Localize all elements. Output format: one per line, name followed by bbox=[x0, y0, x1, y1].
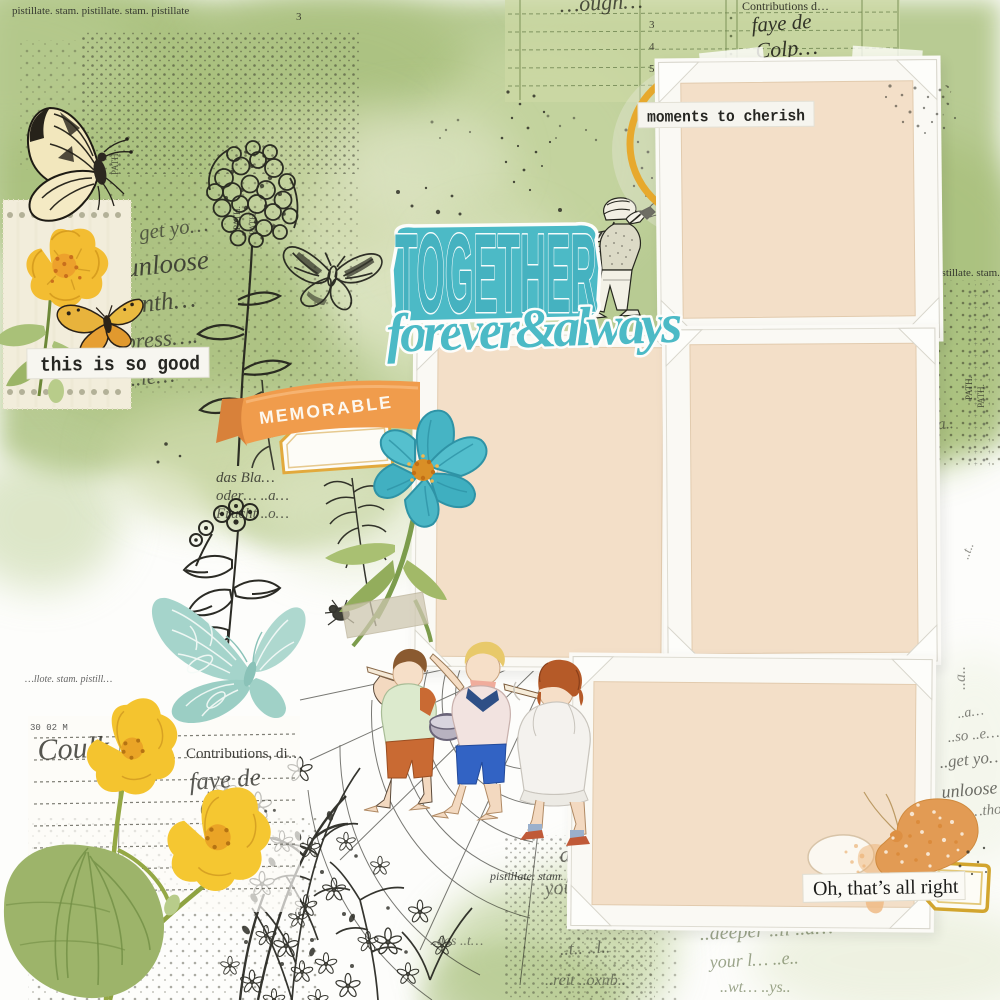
svg-text:PATH.: PATH. bbox=[976, 384, 986, 408]
svg-text:this is so good: this is so good bbox=[40, 353, 200, 377]
svg-text:das Bla…: das Bla… bbox=[216, 470, 275, 486]
svg-text:moments to cherish: moments to cherish bbox=[647, 107, 805, 126]
svg-text:Oh, that’s all right: Oh, that’s all right bbox=[813, 876, 959, 901]
svg-text:…llote. stam. pistill…: …llote. stam. pistill… bbox=[25, 674, 112, 685]
svg-text:oder… ..a…: oder… ..a… bbox=[216, 488, 289, 504]
svg-text:..a..: ..a.. bbox=[952, 666, 969, 690]
svg-text:3: 3 bbox=[649, 19, 655, 31]
svg-text:faye de: faye de bbox=[751, 9, 813, 37]
svg-text:4: 4 bbox=[649, 41, 655, 53]
svg-text:30 02 M: 30 02 M bbox=[30, 723, 68, 733]
svg-text:5: 5 bbox=[649, 63, 655, 75]
svg-text:pistillate. stam. pistillate: pistillate. stam. pistillate. stam. pist… bbox=[12, 5, 189, 17]
svg-text:..t.. ..l..: ..t.. ..l.. bbox=[559, 936, 610, 959]
svg-text:PATH.: PATH. bbox=[964, 376, 974, 400]
svg-text:3: 3 bbox=[296, 11, 302, 23]
svg-text:Contributions, di…: Contributions, di… bbox=[186, 746, 303, 762]
svg-text:..reit ..oxnb..: ..reit ..oxnb.. bbox=[545, 972, 626, 989]
svg-text:forever&always: forever&always bbox=[385, 293, 683, 364]
svg-text:PATH.: PATH. bbox=[110, 151, 120, 175]
svg-text:..wt… ..ys..: ..wt… ..ys.. bbox=[720, 979, 791, 996]
